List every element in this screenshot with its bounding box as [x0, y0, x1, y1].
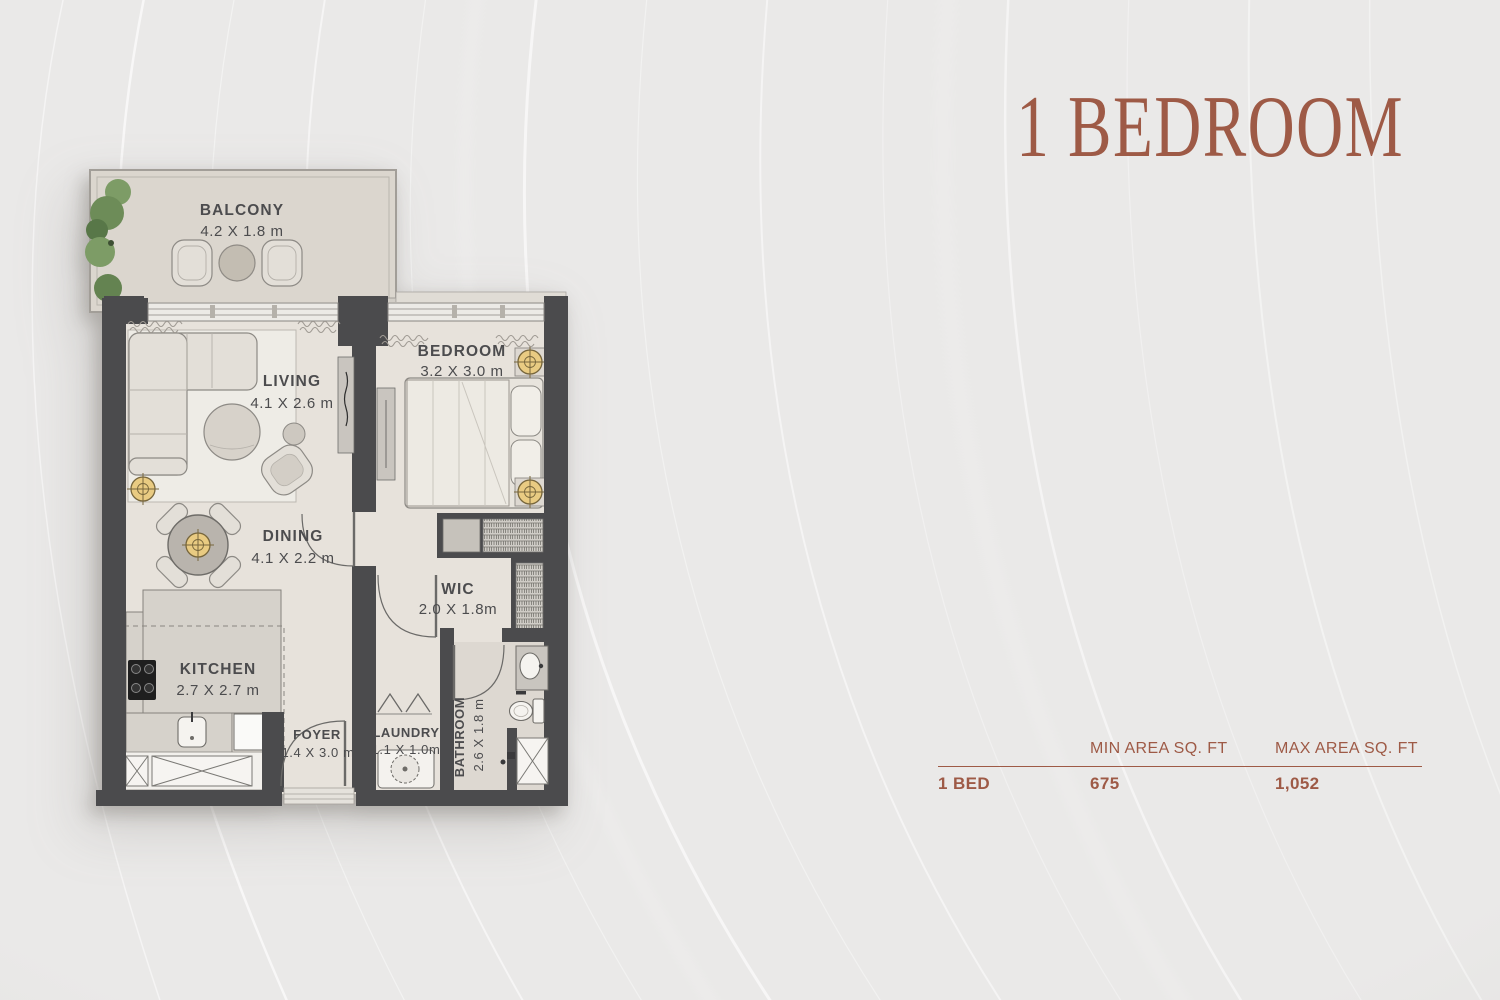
balcony-chair: [262, 240, 302, 286]
kitchen-sink: [178, 712, 206, 747]
tv-panel: [338, 357, 354, 453]
room-dims-dining: 4.1 X 2.2 m: [251, 550, 334, 567]
wall: [352, 345, 376, 512]
room-dims-balcony: 4.2 X 1.8 m: [200, 223, 283, 240]
table-min-value: 675: [1090, 767, 1275, 794]
room-label-dining: DINING: [263, 528, 324, 545]
room-dims-bedroom: 3.2 X 3.0 m: [420, 363, 503, 380]
balcony-table: [219, 245, 255, 281]
wardrobe-shelves: [483, 519, 543, 552]
room-dims-bathroom: 2.6 X 1.8 m: [471, 698, 486, 771]
toilet-icon: [510, 699, 545, 723]
window-ledge: [396, 292, 566, 303]
page-title: 1 BEDROOM: [1016, 88, 1404, 168]
bedroom-window: [388, 303, 544, 321]
room-label-bedroom: BEDROOM: [418, 343, 507, 360]
table-max-value: 1,052: [1275, 767, 1422, 794]
room-label-balcony: BALCONY: [200, 202, 284, 219]
area-table: MIN AREA SQ. FT MAX AREA SQ. FT 1 BED 67…: [938, 740, 1422, 794]
table-row-label: 1 BED: [938, 767, 1090, 794]
room-label-foyer: FOYER: [293, 727, 341, 742]
pillow: [511, 386, 541, 436]
room-dims-laundry: 1.1 X 1.0m: [372, 742, 441, 757]
room-label-kitchen: KITCHEN: [180, 661, 257, 678]
room-dims-foyer: 1.4 X 3.0 m: [281, 745, 354, 760]
coffee-table: [204, 404, 260, 460]
room-label-wic: WIC: [441, 581, 474, 598]
entry-threshold: [284, 788, 354, 804]
wardrobe-cabinet: [443, 519, 480, 552]
table-header-min-area: MIN AREA SQ. FT: [1090, 740, 1275, 766]
room-label-bathroom: BATHROOM: [452, 697, 467, 777]
stove-icon: [128, 660, 156, 700]
balcony: BALCONY 4.2 X 1.8 m: [85, 170, 396, 314]
sink-icon: [520, 653, 540, 679]
room-label-laundry: LAUNDRY: [372, 725, 439, 740]
service-shafts: [122, 752, 270, 790]
room-label-living: LIVING: [263, 373, 321, 390]
table-header-max-area: MAX AREA SQ. FT: [1275, 740, 1422, 766]
room-dims-living: 4.1 X 2.6 m: [250, 395, 333, 412]
wardrobe-panel: [377, 388, 395, 480]
floor-plan: BALCONY 4.2 X 1.8 m: [80, 150, 580, 820]
room-dims-wic: 2.0 X 1.8m: [419, 601, 498, 618]
area-table-spacer: [938, 740, 1090, 766]
balcony-chair: [172, 240, 212, 286]
room-dims-kitchen: 2.7 X 2.7 m: [176, 682, 259, 699]
wardrobe-shelves: [516, 563, 543, 631]
side-table: [283, 423, 305, 445]
living-window: [148, 303, 338, 321]
